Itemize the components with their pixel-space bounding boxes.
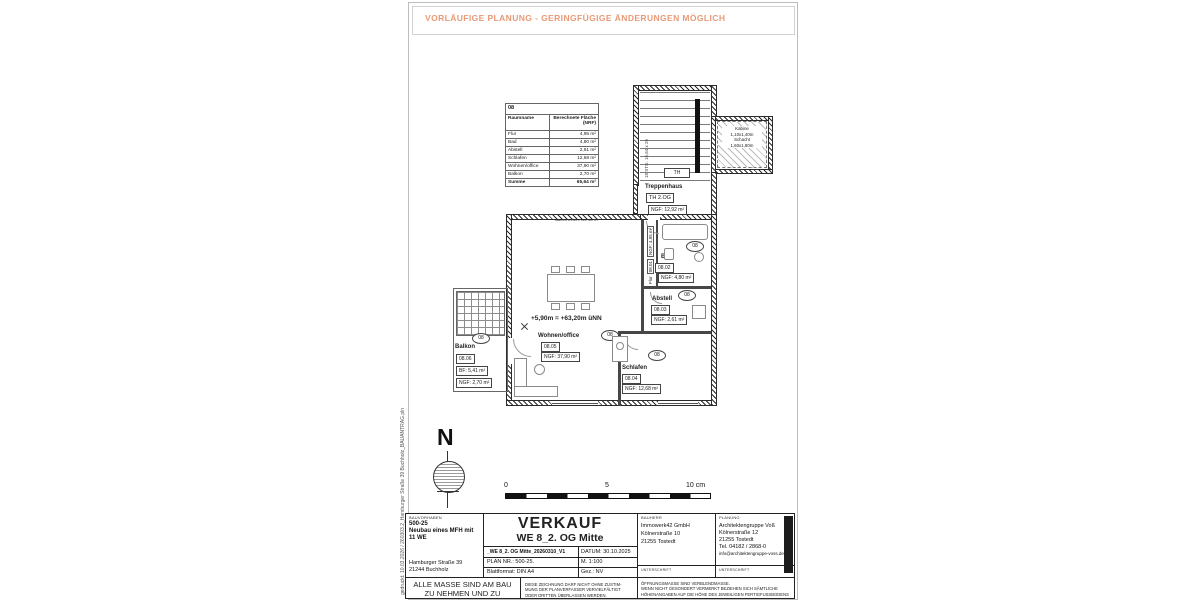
room-id-balkon: 08.06 xyxy=(456,354,475,364)
title-block-line xyxy=(715,513,716,577)
table-header-area: Berechnete Fläche (NRF) xyxy=(550,115,599,131)
chair xyxy=(566,303,575,310)
room-name-abstell: Abstell xyxy=(652,296,672,302)
table-row: Bad4,80 m² xyxy=(506,139,599,147)
window-glass-line xyxy=(552,403,598,404)
title-block-line xyxy=(483,546,637,547)
sofa xyxy=(514,386,558,397)
planung-city: 21255 Tostedt xyxy=(719,537,753,543)
table-header-room: Raumname xyxy=(506,115,550,131)
title-block-line xyxy=(637,565,795,566)
room-name-wohnen: Wohnen/office xyxy=(538,333,579,339)
wall xyxy=(711,85,717,118)
stair-note: 18 STG. 16,64 x 26 xyxy=(644,139,649,178)
format-field: Blattformat: DIN A4 xyxy=(487,569,534,575)
table-row: Abstell2,61 m² xyxy=(506,147,599,155)
scale-field: M. 1:100 xyxy=(581,559,602,565)
unterschrift-label: UNTERSCHRIFT xyxy=(641,568,671,572)
stamp-strip xyxy=(784,516,793,573)
sheet-title: VERKAUF xyxy=(483,515,637,533)
file-name: _WE 8_2. OG Mitte_20260310_V1 xyxy=(487,549,565,555)
wall xyxy=(506,214,646,220)
sheet-subtitle: WE 8_2. OG Mitte xyxy=(483,532,637,544)
room-id-treppenhaus: TH 2.OG xyxy=(646,193,674,203)
bauherr-city: 21255 Tostedt xyxy=(641,539,675,545)
preliminary-notice: VORLÄUFIGE PLANUNG - GERINGFÜGIGE ÄNDERU… xyxy=(425,13,725,23)
drawn-by-field: Gez.: NV xyxy=(581,569,603,575)
sink xyxy=(616,342,624,350)
level-mark: +5,90m = +63,20m üNN xyxy=(531,315,602,322)
room-id-bad: 08.02 xyxy=(655,263,674,273)
unit-badge: 08 xyxy=(648,350,666,361)
title-block-line xyxy=(483,557,637,558)
scale-tick-0: 0 xyxy=(504,482,508,489)
table-row: Flur4,95 m² xyxy=(506,131,599,139)
opening-dimensions-note: ÖFFNUNGSMASSE SIND VERBLENDMASSE. WENN N… xyxy=(641,581,789,597)
room-area-schlafen: NGF: 12,68 m² xyxy=(622,384,661,394)
chair xyxy=(566,266,575,273)
interior-wall xyxy=(641,220,644,333)
table-row: Wohnen/office37,90 m² xyxy=(506,163,599,171)
north-label: N xyxy=(437,424,454,451)
north-symbol-icon xyxy=(433,461,465,493)
title-block-line xyxy=(637,513,638,599)
north-tick xyxy=(437,491,459,492)
title-block-line xyxy=(578,546,579,577)
room-id-schlafen: 08.04 xyxy=(622,374,641,384)
th-box: TH xyxy=(664,168,690,178)
planung-email: info@architektengruppe-voss.de xyxy=(719,551,784,556)
room-name-treppenhaus: Treppenhaus xyxy=(645,184,682,190)
unit-badge: 08 xyxy=(686,241,704,252)
title-block-line xyxy=(483,567,637,568)
door-opening xyxy=(648,215,660,220)
project-address-2: 21244 Buchholz xyxy=(409,567,448,573)
room-area-wohnen: NGF: 37,90 m² xyxy=(541,352,580,362)
table-sum-row: Summe65,64 m² xyxy=(506,179,599,187)
scale-tick-10: 10 cm xyxy=(686,482,705,489)
interior-wall xyxy=(618,331,711,334)
washbasin xyxy=(694,252,704,262)
planung-street: Kölnerstraße 12 xyxy=(719,530,758,536)
balcony-tiles xyxy=(456,291,505,336)
wall xyxy=(633,85,717,91)
window-glass-line xyxy=(658,403,698,404)
project-name: Neubau eines MFH mit 11 WE xyxy=(409,528,481,542)
table-row: Schlafen12,68 m² xyxy=(506,155,599,163)
room-area-abstell: NGF: 2,61 m² xyxy=(651,315,687,325)
chair xyxy=(581,266,590,273)
interior-wall xyxy=(644,286,711,289)
room-name-balkon: Balkon xyxy=(455,344,475,350)
dining-table xyxy=(547,274,595,302)
date-field: DATUM: 30.10.2025 xyxy=(581,549,631,555)
floor-plan-sheet: VORLÄUFIGE PLANUNG - GERINGFÜGIGE ÄNDERU… xyxy=(0,0,1200,600)
chair xyxy=(551,266,560,273)
wall xyxy=(633,85,639,186)
planung-phone: Tel. 04182 / 2868-0 xyxy=(719,544,766,550)
measure-warning: ALLE MASSE SIND AM BAU ZU NEHMEN UND ZU … xyxy=(407,580,518,600)
room-id-abstell: 08.03 xyxy=(651,305,670,315)
planung-label: PLANUNG xyxy=(719,515,740,520)
bauherr-name: Immowerk42 GmbH xyxy=(641,523,690,529)
unit-badge: 08 xyxy=(472,333,490,344)
chair xyxy=(581,303,590,310)
wall xyxy=(711,214,717,406)
bauherr-street: Kölnerstraße 10 xyxy=(641,531,680,537)
unit-badge: 08 xyxy=(678,290,696,301)
bauvorhaben-label: BAUVORHABEN xyxy=(409,515,442,520)
room-id-wohnen: 08.05 xyxy=(541,342,560,352)
bauherr-label: BAUHERR xyxy=(641,515,662,520)
stair-handrail xyxy=(695,99,700,173)
wall xyxy=(711,116,716,174)
table-unit-number: 08 xyxy=(506,104,599,115)
planung-name: Architektengruppe Voß xyxy=(719,523,775,529)
title-block-line xyxy=(405,577,795,578)
project-number: 500-25 xyxy=(409,521,428,527)
room-area-balkon: NGF: 2,70 m² xyxy=(456,378,492,388)
wall xyxy=(768,116,773,174)
wall xyxy=(711,169,773,174)
room-bf-balkon: BF: 5,41 m² xyxy=(456,366,488,376)
elevator-label: Kabine 1,10x1,40m Schacht 1,60x1,80m xyxy=(722,126,762,148)
washer xyxy=(692,305,706,319)
scale-tick-5: 5 xyxy=(605,482,609,489)
copyright-note: DIESE ZEICHNUNG DARF NICHT OHNE ZUSTIM- … xyxy=(525,582,621,598)
project-address-1: Hamburger Straße 39 xyxy=(409,560,462,566)
wall xyxy=(711,172,717,216)
side-table xyxy=(534,364,545,375)
room-area-bad: NGF: 4,80 m² xyxy=(658,273,694,283)
title-block-line xyxy=(520,577,521,599)
room-name-schlafen: Schlafen xyxy=(622,365,647,371)
room-area-table: 08 Raumname Berechnete Fläche (NRF) Flur… xyxy=(505,103,599,187)
table-row: Balkon2,70 m² xyxy=(506,171,599,179)
plan-number: PLAN NR.: 500-25. xyxy=(487,559,534,565)
wall xyxy=(633,184,638,214)
unterschrift-label: UNTERSCHRIFT xyxy=(719,568,749,572)
bathtub xyxy=(662,224,708,240)
toilet xyxy=(664,248,674,260)
scale-bar xyxy=(505,493,711,499)
room-label-flur: Flur08.01NGF: 4,95 m² xyxy=(647,226,654,284)
chair xyxy=(551,303,560,310)
